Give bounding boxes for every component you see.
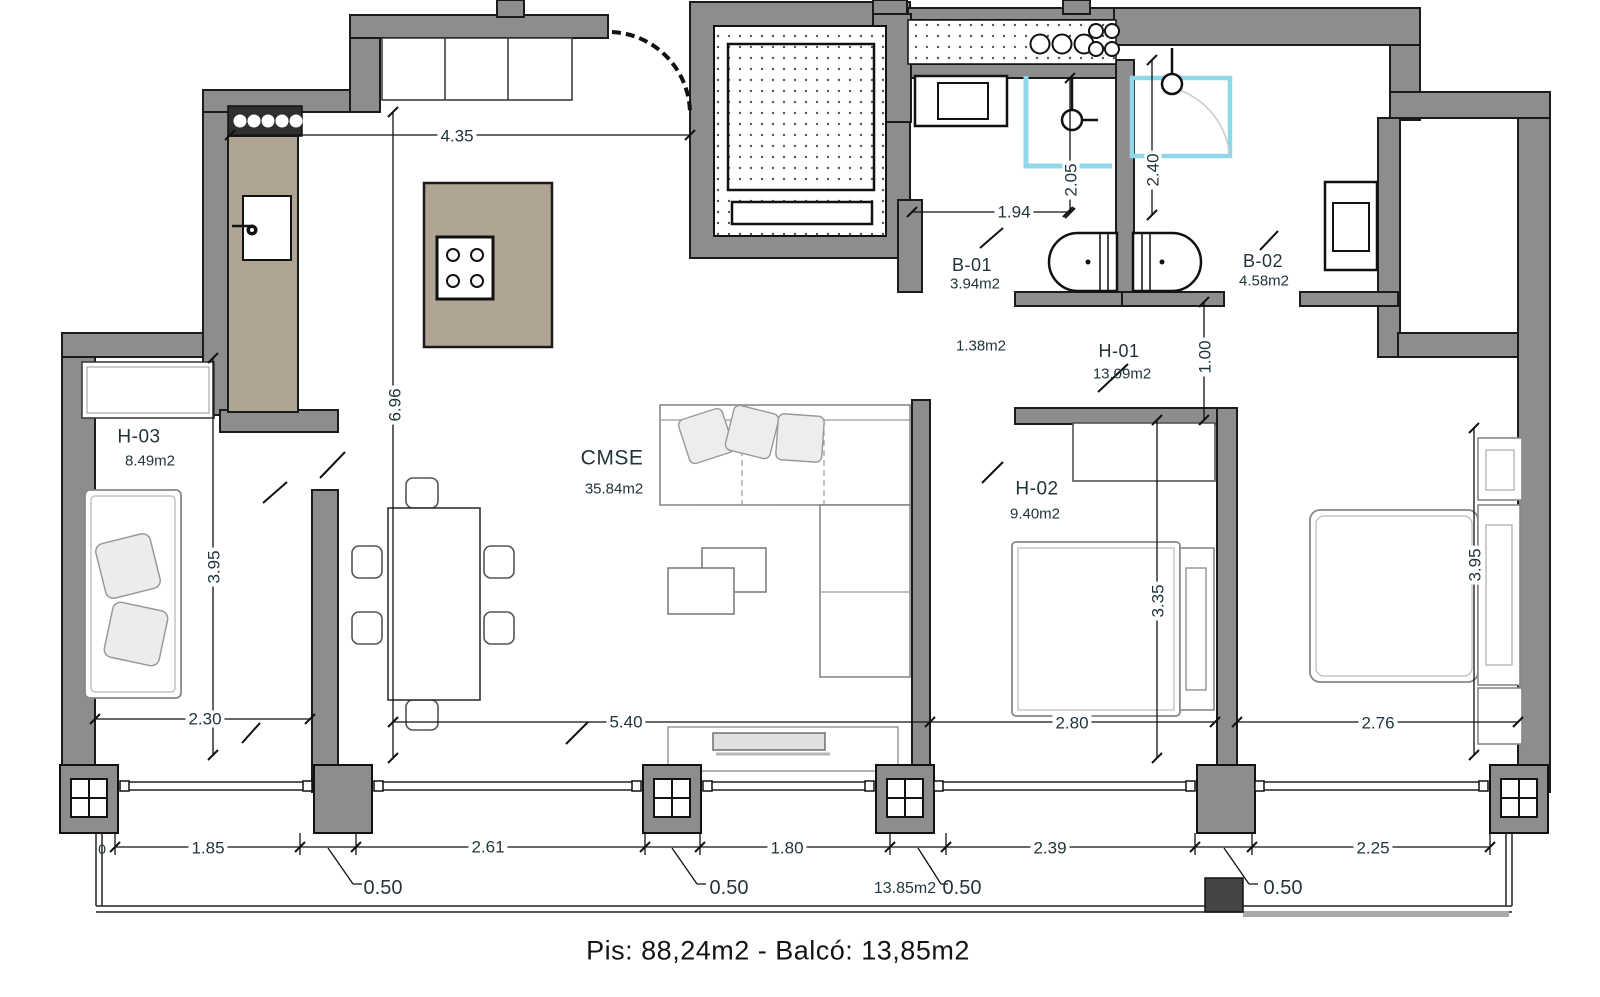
dim-h01-height: 3.95 [1467, 545, 1484, 584]
stair-shaft [714, 26, 886, 236]
room-label-b02: B-02 [1243, 252, 1283, 270]
bedroom-h03 [82, 362, 214, 698]
room-area-b02: 4.58m2 [1239, 274, 1289, 289]
pillar [314, 765, 372, 833]
dim-h02-width: 2.80 [1052, 715, 1091, 732]
b02-shower-head [1162, 74, 1182, 94]
balcony-area-label: 13.85m2 [874, 881, 936, 897]
coffee-table [668, 568, 734, 614]
room-area-h03: 8.49m2 [125, 454, 175, 469]
pillar [1197, 765, 1255, 833]
kitchen-counter [228, 136, 298, 412]
room-label-h03: H-03 [117, 428, 160, 447]
bathroom-b01 [915, 76, 1117, 291]
dining-chair [406, 700, 438, 730]
chain-dim-4: 2.39 [1030, 840, 1069, 857]
dim-edge-left: 0 [98, 842, 106, 856]
room-area-h02: 9.40m2 [1010, 507, 1060, 522]
room-area-cmse: 35.84m2 [585, 482, 643, 497]
closet-area-label: 1.38m2 [956, 339, 1006, 354]
pillar-offset-4: 0.50 [1264, 878, 1303, 898]
room-label-cmse: CMSE [581, 448, 644, 469]
h01-nightstand [1478, 438, 1522, 500]
bedroom-h02 [1012, 423, 1215, 716]
dim-living-width: 5.40 [606, 714, 645, 731]
pillar-offset-1: 0.50 [364, 878, 403, 898]
entry-door-arc [612, 32, 690, 114]
sofa-pillow [775, 413, 824, 462]
room-area-b01: 3.94m2 [950, 277, 1000, 292]
balcony-column [1205, 878, 1243, 912]
sofa-chaise [820, 505, 910, 677]
dim-b02-shower: 2.40 [1145, 150, 1162, 189]
bedroom-h01 [1310, 438, 1522, 744]
dining-chair [352, 612, 382, 644]
entry-area [382, 32, 690, 114]
pillar-offset-3: 0.50 [943, 878, 982, 898]
pillar-offset-2: 0.50 [710, 878, 749, 898]
dim-h02-bed-span: 3.35 [1150, 581, 1167, 620]
dining-chair [484, 546, 514, 578]
chain-dim-2: 2.61 [468, 839, 507, 856]
b01-bathtub [1049, 233, 1117, 291]
h02-wardrobe [1073, 423, 1215, 481]
plan-caption: Pis: 88,24m2 - Balcó: 13,85m2 [586, 938, 970, 965]
facade [60, 765, 1548, 833]
h01-headboard [1478, 505, 1520, 685]
h03-wardrobe [82, 362, 214, 418]
dim-h01-width: 2.76 [1358, 715, 1397, 732]
chain-dim-3: 1.80 [767, 840, 806, 857]
entry-wardrobe [382, 38, 572, 100]
b01-shower-head [1062, 110, 1082, 130]
gallery-strip [908, 20, 1119, 64]
room-label-b01: B-01 [952, 256, 992, 274]
dim-h01-entry: 1.00 [1197, 337, 1214, 376]
h02-bed [1012, 542, 1180, 716]
dining-chair [484, 612, 514, 644]
h01-nightstand [1478, 688, 1522, 744]
h03-pillow [103, 601, 169, 667]
room-label-h02: H-02 [1015, 480, 1058, 499]
chain-dim-5: 2.25 [1353, 840, 1392, 857]
dim-h03-width: 2.30 [185, 711, 224, 728]
room-area-h01: 13.09m2 [1093, 367, 1151, 382]
room-label-h01: H-01 [1098, 342, 1139, 360]
living-furniture [660, 404, 910, 771]
dining-chair [406, 478, 438, 508]
tv [713, 733, 825, 750]
h01-bed [1310, 510, 1478, 682]
dim-h03-height: 3.95 [206, 547, 223, 586]
dining-chair [352, 546, 382, 578]
dim-b01-shower: 2.05 [1063, 160, 1080, 199]
dining-table [388, 508, 480, 700]
floor-plan-page: H-03 8.49m2 CMSE 35.84m2 H-02 9.40m2 H-0… [0, 0, 1600, 997]
chain-dim-1: 1.85 [188, 840, 227, 857]
kitchen-furniture [228, 106, 552, 412]
dim-b01-width: 1.94 [994, 204, 1033, 221]
cooktop [437, 237, 493, 299]
sofa-pillow [724, 404, 780, 460]
dim-living-height: 6.96 [387, 385, 404, 424]
h02-headboard [1180, 548, 1214, 710]
b02-bathtub [1133, 233, 1201, 291]
dim-top-width: 4.35 [437, 128, 476, 145]
dining-set [352, 478, 514, 730]
